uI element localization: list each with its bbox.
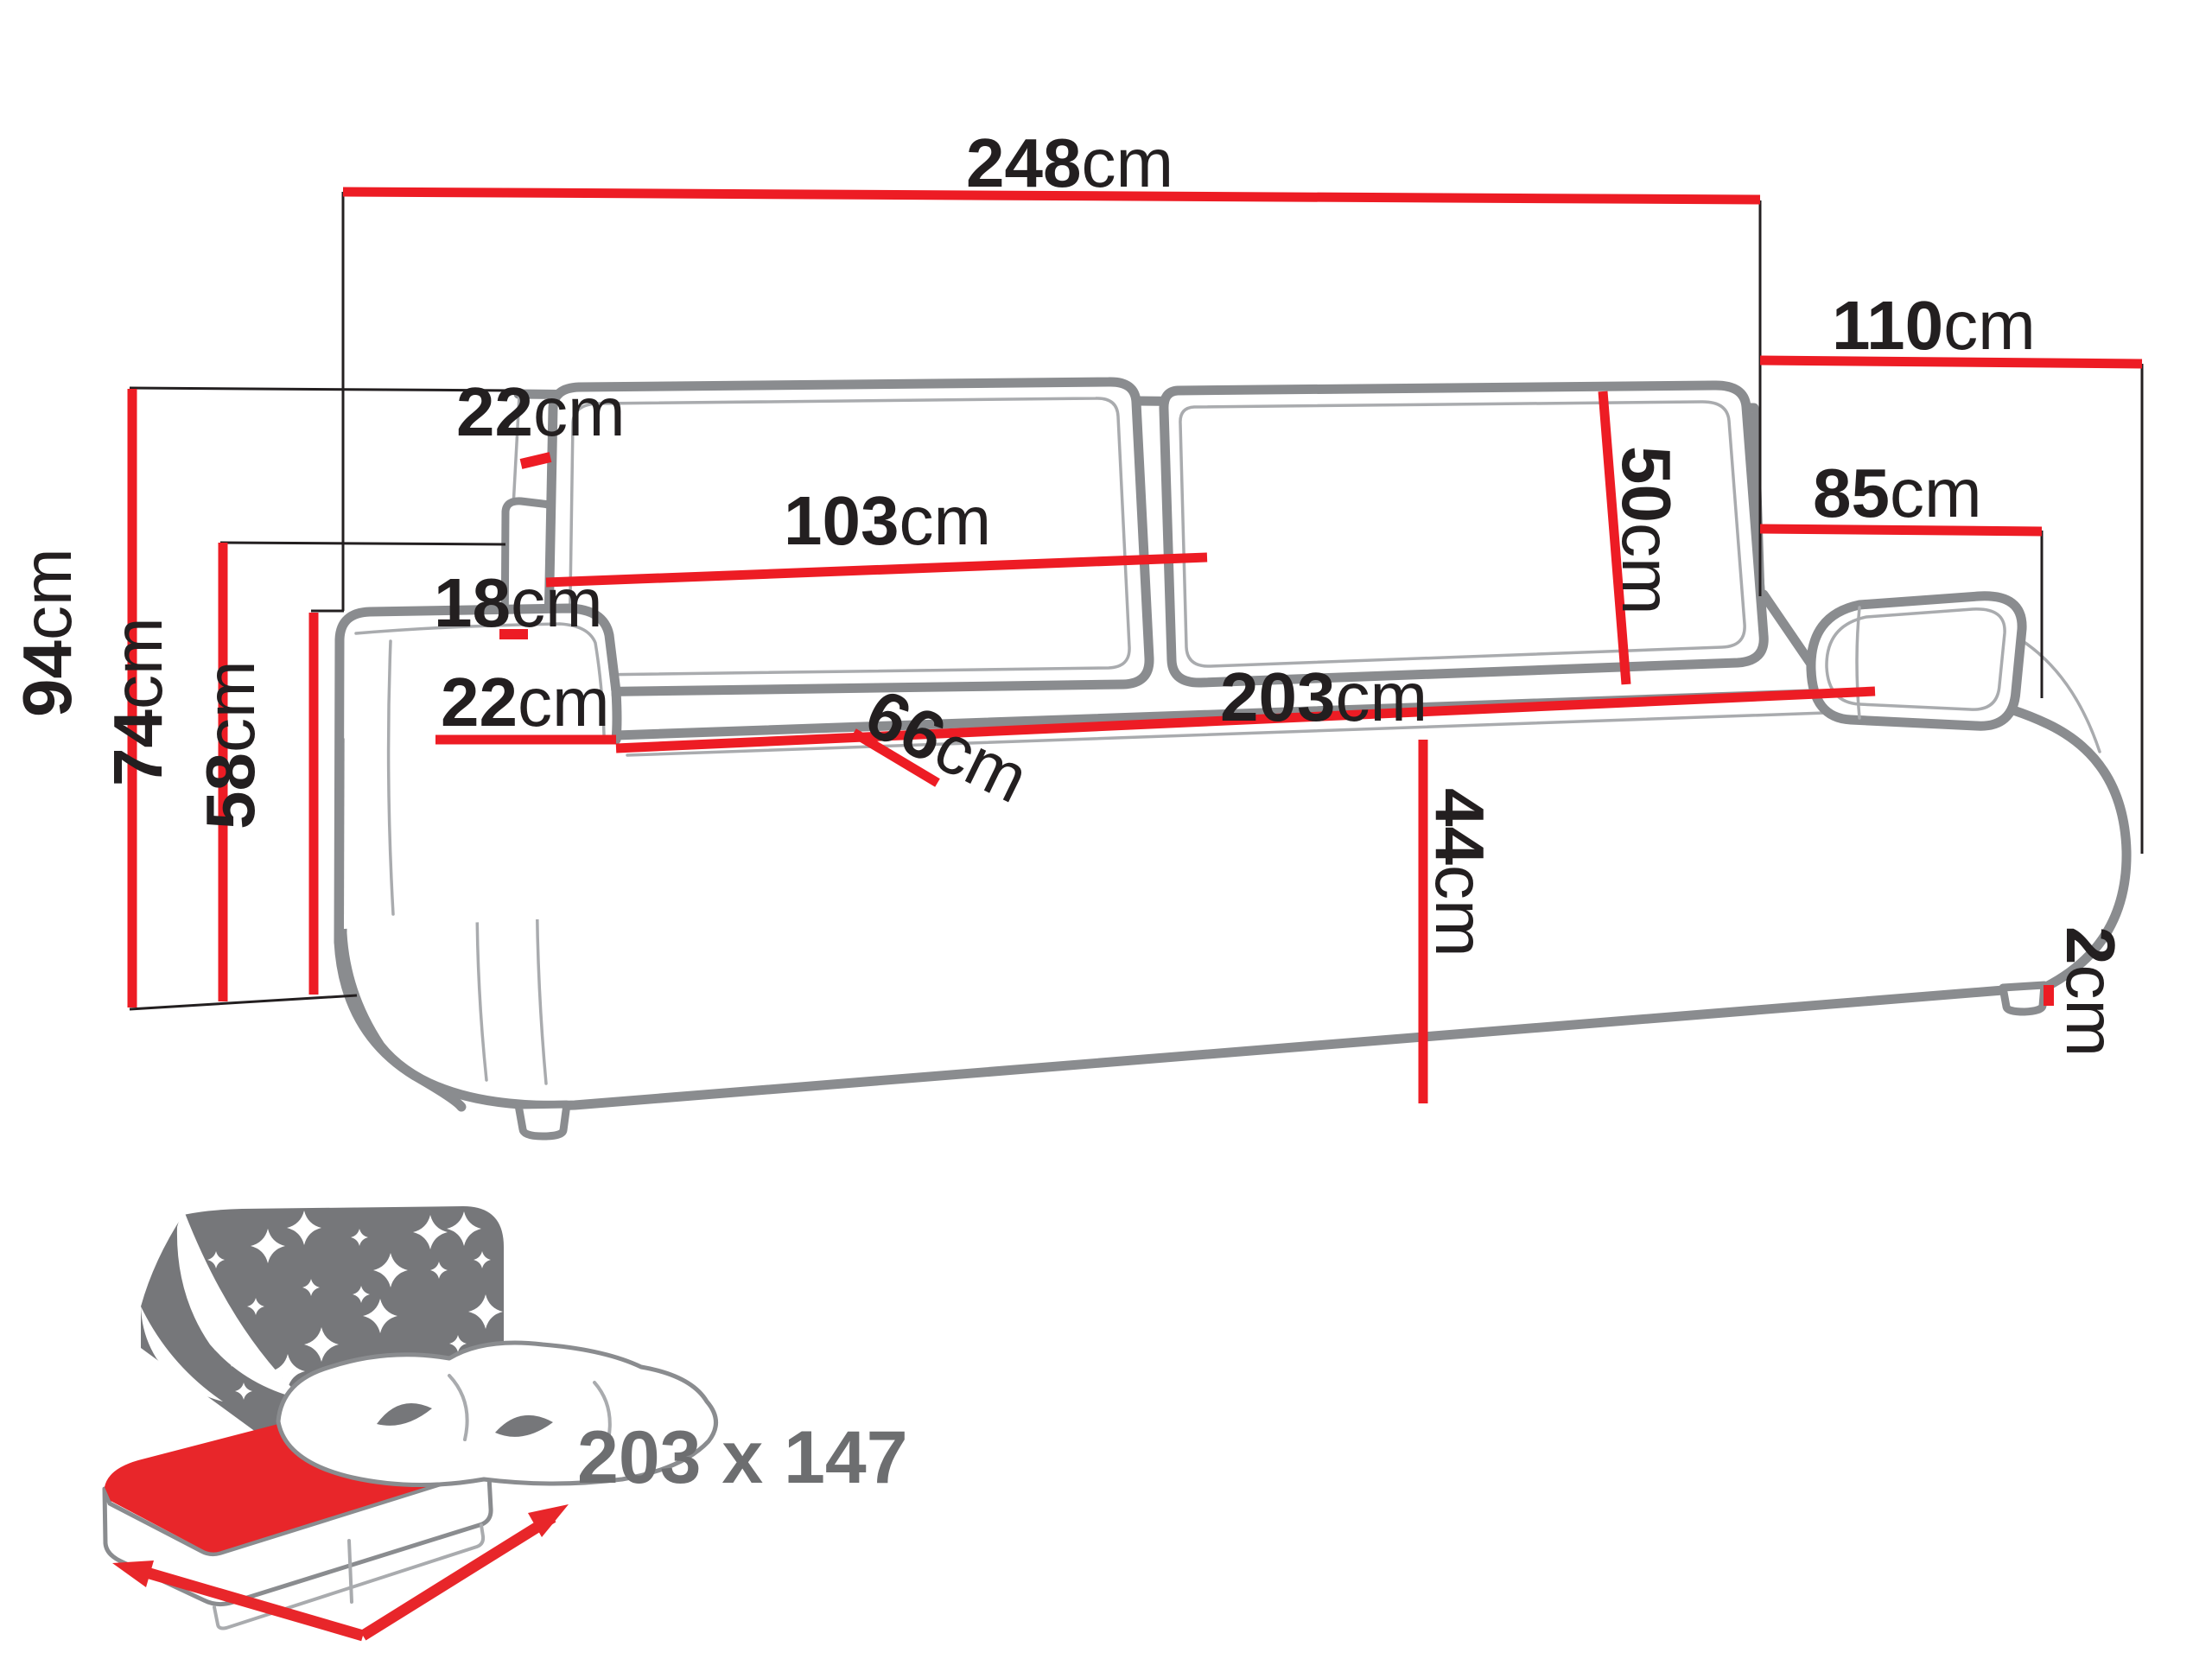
label-total-width: 248cm (966, 124, 1173, 201)
sleeping-area-label: 203 x 147 (577, 1416, 908, 1499)
label-armrest-height: 58cm (192, 660, 269, 829)
ref-line-back-height-top (220, 543, 505, 544)
label-arm-to-back: 85cm (1813, 454, 1982, 531)
label-leg-height: 2cm (2052, 926, 2129, 1057)
label-cushion-height: 50cm (1608, 446, 1685, 615)
label-back-top-depth: 22cm (456, 373, 626, 450)
label-seat-height: 44cm (1421, 788, 1498, 957)
label-armrest-width: 22cm (441, 664, 610, 741)
label-total-depth: 110cm (1832, 287, 2036, 364)
ref-line-total-height-top (130, 388, 512, 391)
label-cushion-width: 103cm (784, 482, 991, 559)
label-side-gap: 18cm (434, 564, 603, 641)
sofa-leg-right (2003, 985, 2044, 1012)
armrest-left-fill (344, 611, 614, 929)
sleeping-area-icon: 203 x 147 (105, 1206, 908, 1636)
label-total-height: 94cm (9, 548, 86, 717)
sofa-leg-left (518, 1104, 567, 1136)
sofa-dimension-diagram: 248cm 110cm 85cm 22cm 103cm 18cm 22cm 20… (0, 0, 2212, 1659)
ref-line-floor (130, 995, 357, 1009)
label-seat-width: 203cm (1220, 658, 1427, 735)
label-back-height: 74cm (99, 617, 176, 786)
dim-tick-back-top (521, 457, 550, 464)
